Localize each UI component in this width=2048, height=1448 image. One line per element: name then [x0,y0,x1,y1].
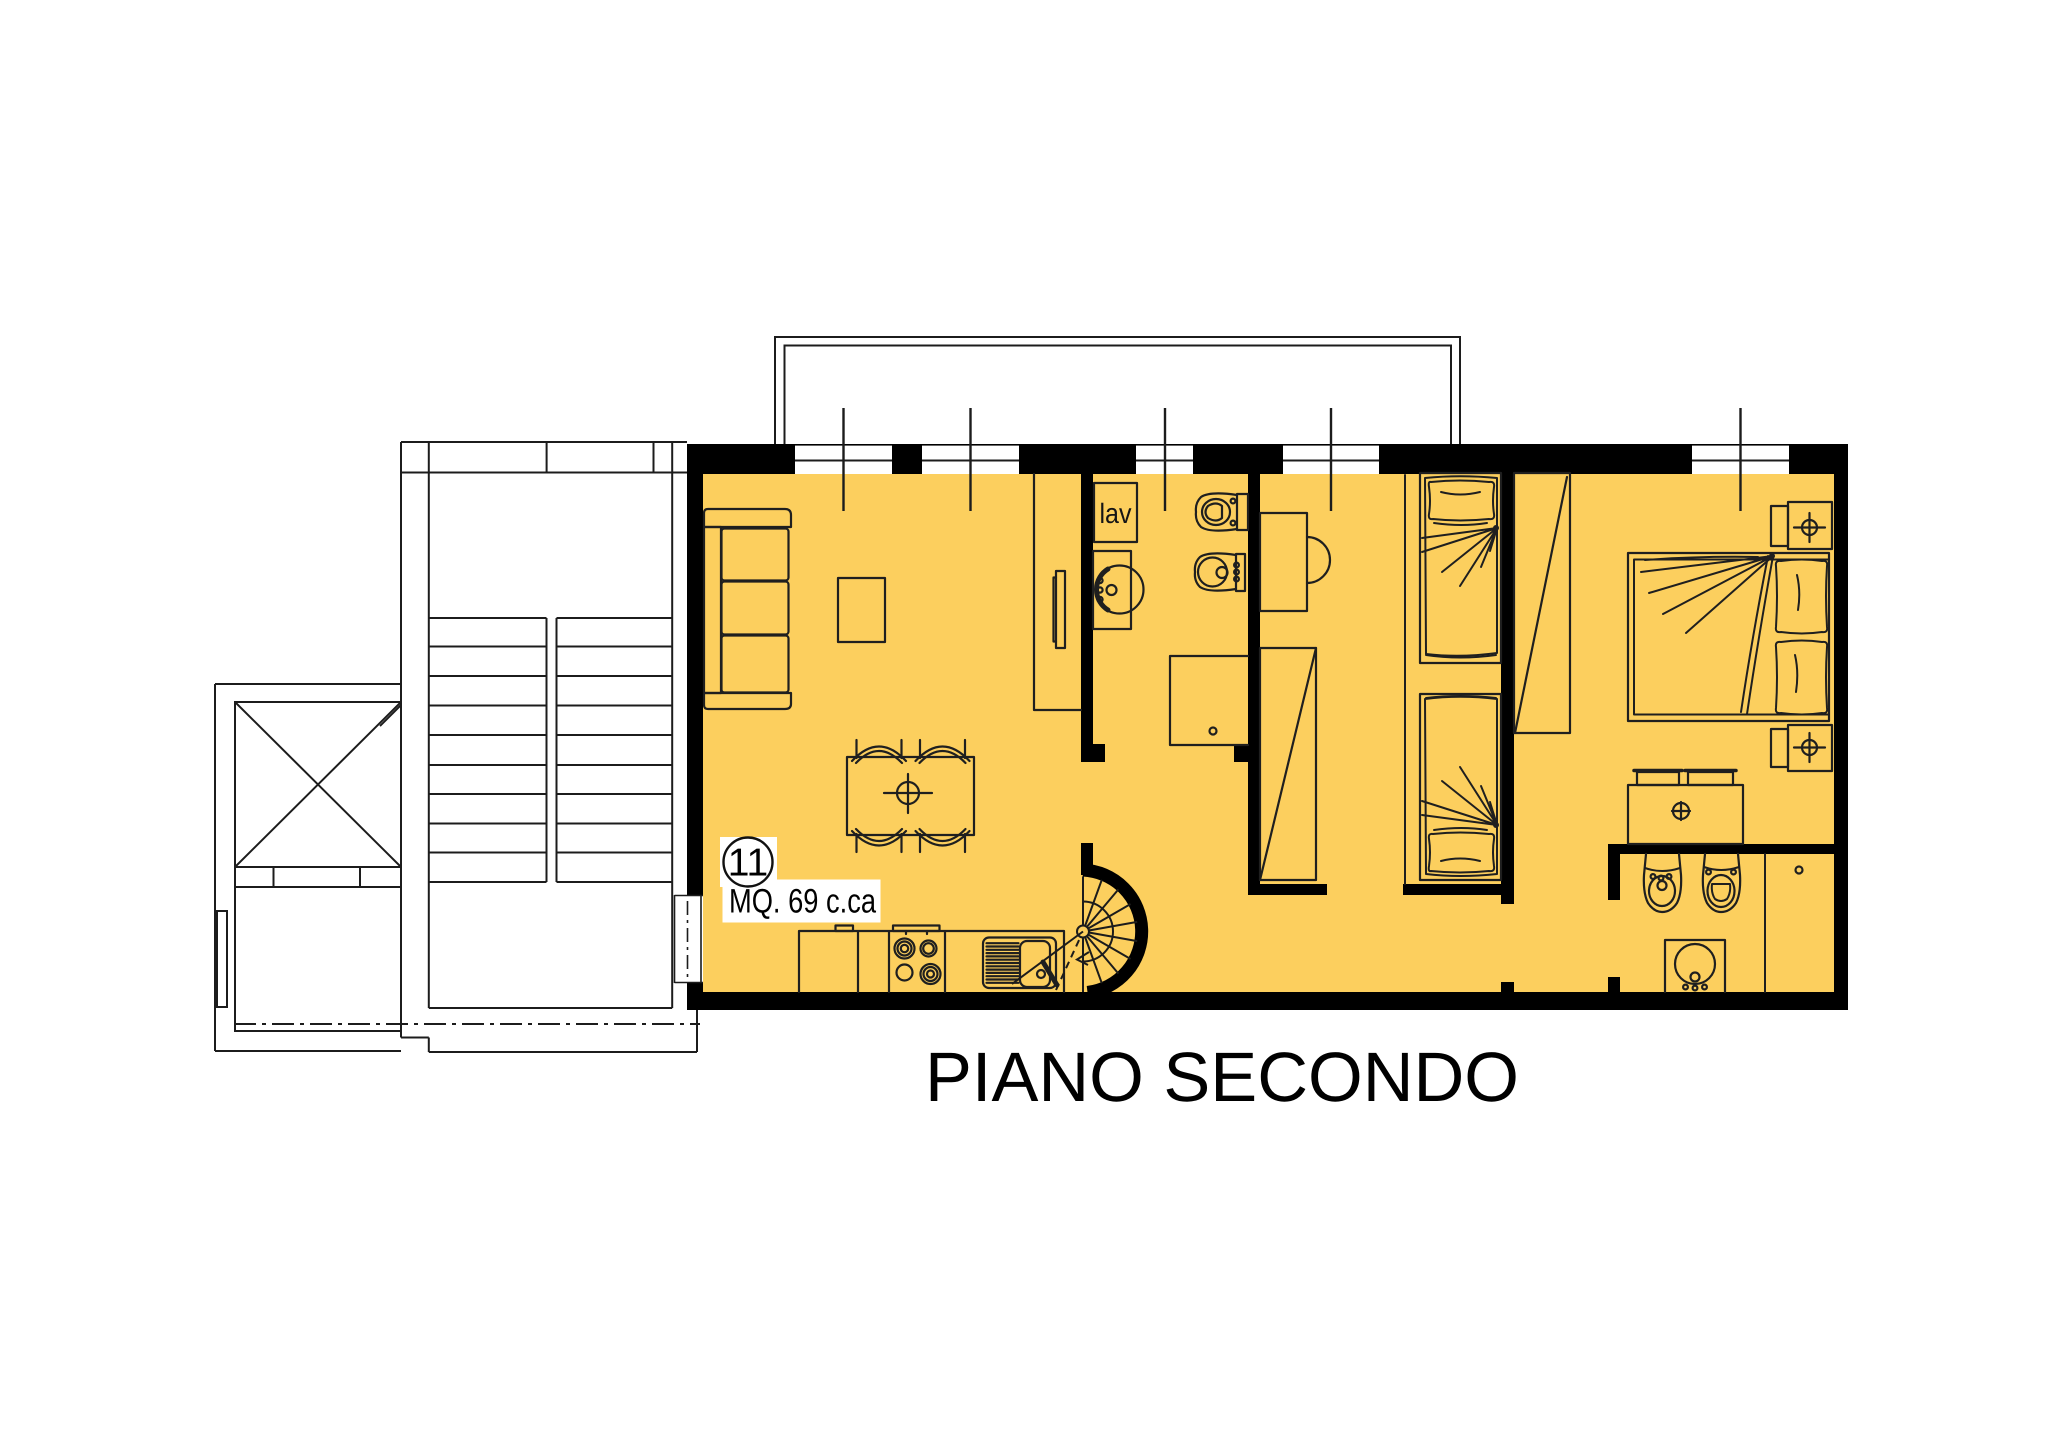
svg-text:11: 11 [728,842,769,885]
svg-text:PIANO SECONDO: PIANO SECONDO [925,1038,1519,1116]
svg-text:MQ. 69 c.ca: MQ. 69 c.ca [729,883,876,921]
svg-text:lav: lav [1100,498,1132,529]
